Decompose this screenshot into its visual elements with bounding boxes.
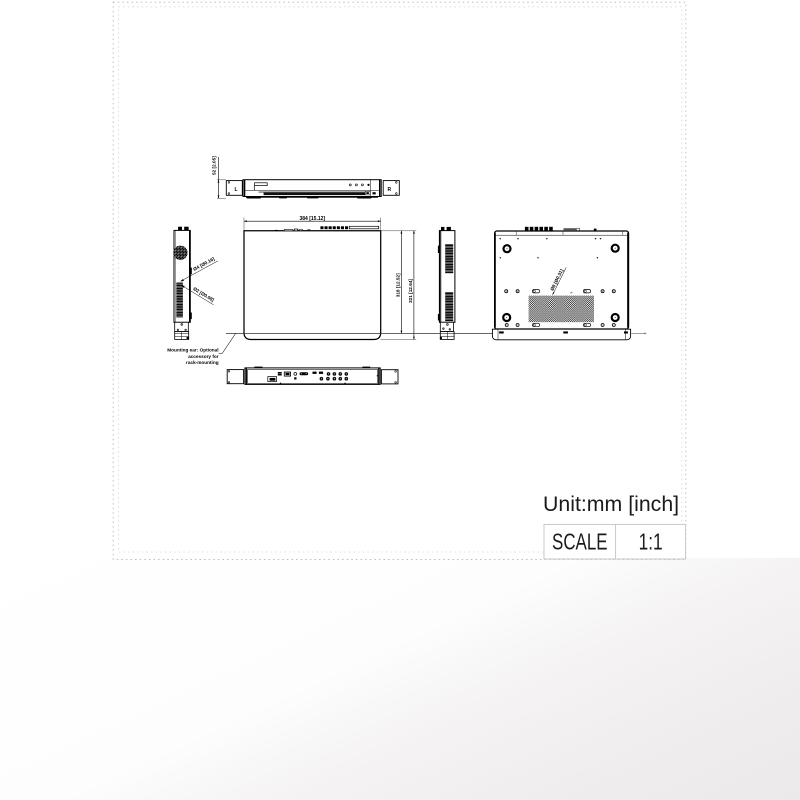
svg-text:384 [15.12]: 384 [15.12]	[300, 216, 326, 222]
svg-text:52 [2.05]: 52 [2.05]	[212, 156, 217, 175]
svg-text:rack-mounting: rack-mounting	[186, 360, 219, 365]
svg-text:318 [12.52]: 318 [12.52]	[396, 273, 401, 297]
svg-text:Unit:mm [inch]: Unit:mm [inch]	[543, 492, 679, 516]
svg-text:SCALE: SCALE	[552, 529, 608, 555]
svg-text:accessory for: accessory for	[188, 354, 219, 359]
svg-text:Ø2 [Ø0.08]: Ø2 [Ø0.08]	[192, 286, 215, 303]
svg-text:R: R	[387, 187, 391, 193]
svg-text:321 [12.64]: 321 [12.64]	[408, 279, 413, 303]
svg-text:L: L	[234, 187, 237, 193]
svg-text:Mounting ear: Optional: Mounting ear: Optional	[167, 347, 218, 352]
svg-text:1:1: 1:1	[639, 529, 663, 555]
